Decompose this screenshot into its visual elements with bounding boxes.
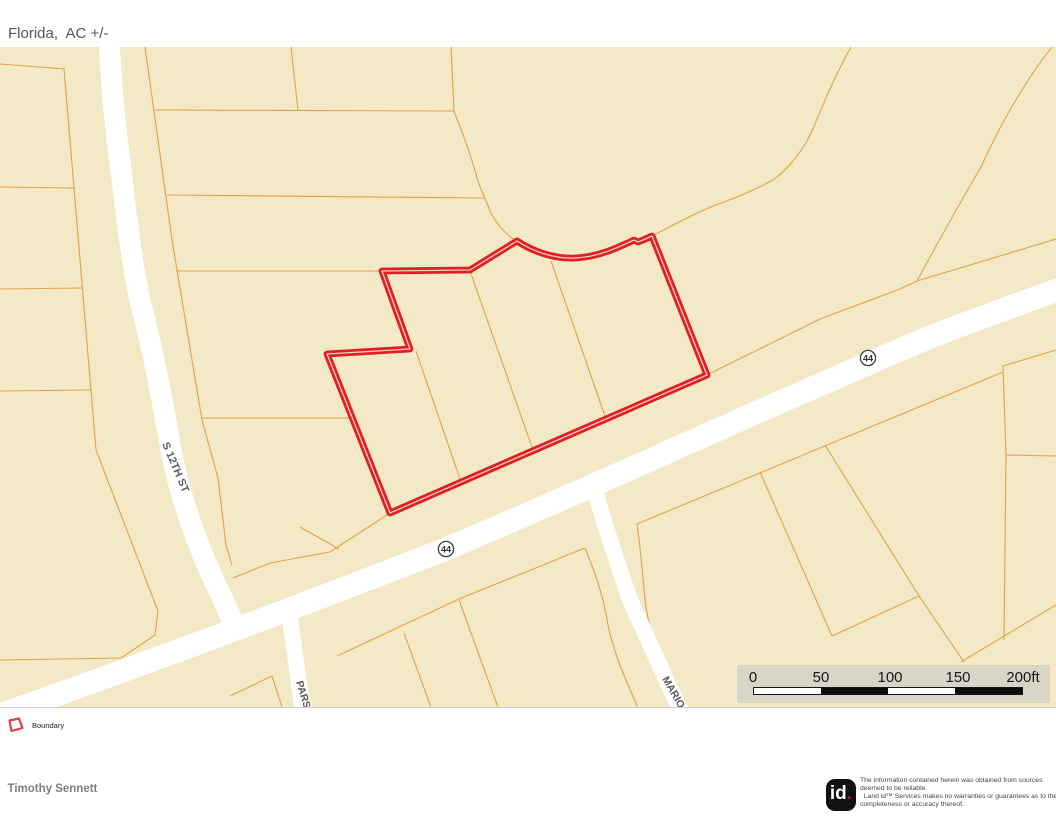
svg-text:44: 44 xyxy=(863,354,873,364)
svg-text:44: 44 xyxy=(441,545,451,555)
